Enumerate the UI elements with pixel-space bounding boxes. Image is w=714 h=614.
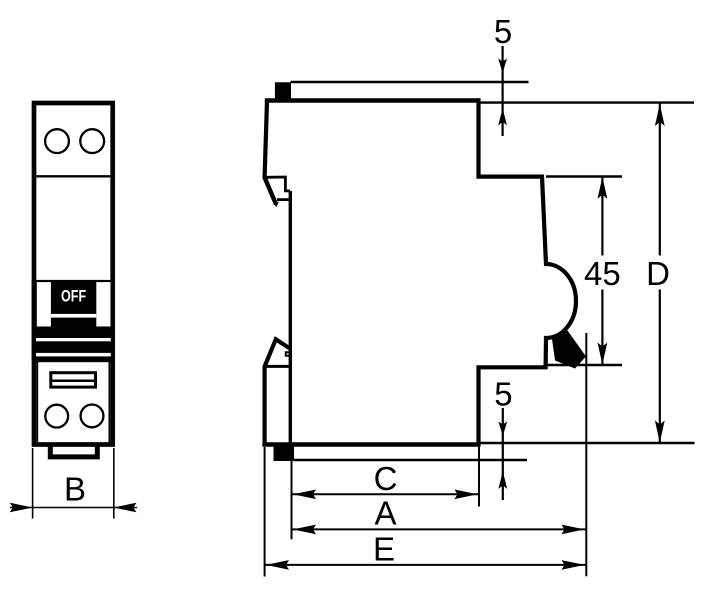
svg-text:D: D [646, 255, 670, 292]
svg-text:A: A [374, 495, 396, 532]
svg-text:E: E [373, 531, 395, 568]
svg-text:5: 5 [494, 376, 512, 413]
svg-text:OFF: OFF [61, 287, 86, 306]
svg-text:C: C [374, 460, 398, 497]
svg-text:45: 45 [584, 255, 621, 292]
svg-text:5: 5 [494, 13, 512, 50]
svg-text:B: B [64, 471, 86, 508]
